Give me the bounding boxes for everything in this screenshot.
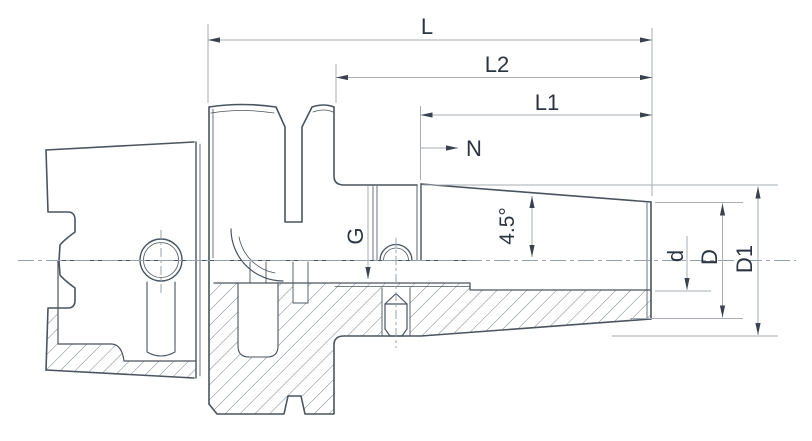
dim-label-D1: D1 — [732, 245, 757, 273]
internal-recess-cutout — [238, 283, 278, 357]
thread-pocket-cutout — [293, 283, 308, 303]
dim-label-d: d — [663, 250, 688, 262]
dim-label-L2: L2 — [485, 52, 509, 77]
dim-label-L1: L1 — [535, 90, 559, 115]
hsk-shank-upper — [46, 142, 194, 261]
technical-drawing-canvas: L L2 L1 N 4.5° G d D D1 — [0, 0, 812, 441]
body-detail-lines — [373, 184, 421, 260]
dim-label-L: L — [421, 14, 433, 39]
dim-label-G: G — [343, 227, 368, 244]
dim-label-D: D — [697, 249, 722, 265]
dim-label-angle: 4.5° — [496, 207, 519, 245]
tool-holder-drawing: L L2 L1 N 4.5° G d D D1 — [0, 0, 812, 441]
dim-label-N: N — [466, 136, 482, 161]
grip-hole-cutout — [147, 282, 175, 356]
dimension-labels: L L2 L1 N 4.5° G d D D1 — [343, 14, 757, 273]
section-hatch — [46, 283, 651, 414]
